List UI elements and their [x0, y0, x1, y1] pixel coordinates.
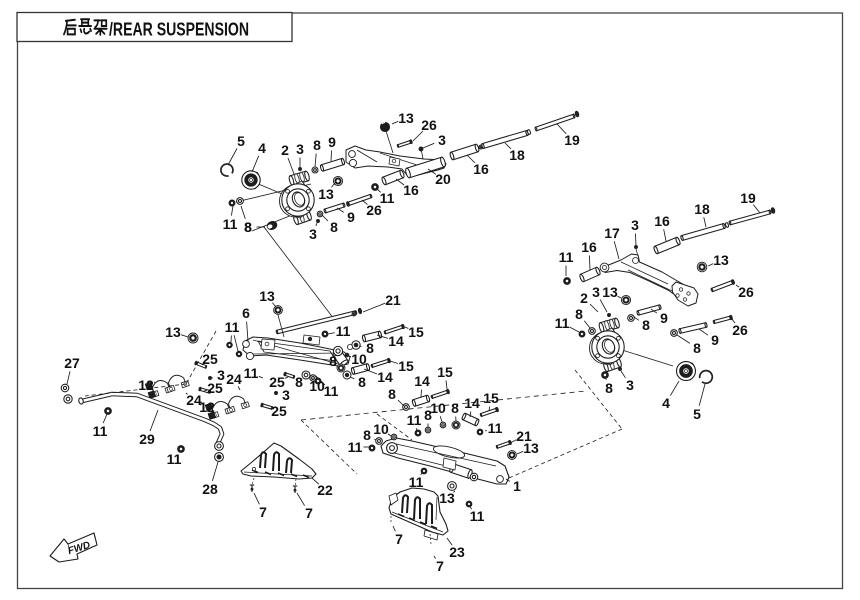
svg-text:16: 16 — [473, 161, 489, 177]
svg-text:13: 13 — [259, 288, 275, 304]
svg-text:8: 8 — [575, 306, 583, 322]
svg-text:/REAR SUSPENSION: /REAR SUSPENSION — [109, 19, 249, 39]
svg-text:21: 21 — [385, 292, 401, 308]
svg-text:16: 16 — [581, 239, 597, 255]
svg-text:13: 13 — [318, 186, 334, 202]
svg-text:8: 8 — [358, 374, 366, 390]
svg-text:5: 5 — [693, 406, 701, 422]
svg-text:18: 18 — [509, 147, 525, 163]
svg-text:11: 11 — [223, 216, 238, 232]
svg-text:8: 8 — [605, 380, 613, 396]
svg-text:3: 3 — [296, 141, 304, 157]
svg-text:8: 8 — [313, 137, 321, 153]
svg-text:10: 10 — [351, 351, 367, 367]
svg-text:2: 2 — [281, 142, 289, 158]
svg-text:8: 8 — [329, 353, 337, 369]
svg-text:26: 26 — [738, 284, 754, 300]
svg-text:17: 17 — [604, 225, 620, 241]
svg-text:11: 11 — [244, 365, 259, 381]
svg-text:13: 13 — [602, 284, 618, 300]
svg-text:29: 29 — [139, 431, 155, 447]
svg-text:8: 8 — [295, 374, 303, 390]
svg-text:16: 16 — [403, 182, 419, 198]
svg-text:11: 11 — [348, 439, 363, 455]
svg-text:3: 3 — [626, 377, 634, 393]
svg-text:8: 8 — [244, 219, 252, 235]
svg-text:13: 13 — [398, 110, 414, 126]
svg-text:24: 24 — [226, 371, 242, 387]
svg-text:8: 8 — [363, 427, 371, 443]
svg-text:3: 3 — [309, 226, 317, 242]
svg-text:11: 11 — [380, 190, 395, 206]
svg-text:13: 13 — [713, 252, 729, 268]
svg-text:6: 6 — [242, 305, 250, 321]
svg-text:11: 11 — [555, 315, 570, 331]
svg-text:3: 3 — [438, 132, 446, 148]
svg-text:24: 24 — [186, 392, 202, 408]
svg-text:11: 11 — [407, 412, 422, 428]
svg-text:22: 22 — [317, 482, 333, 498]
svg-text:19: 19 — [740, 190, 756, 206]
svg-text:13: 13 — [439, 490, 455, 506]
svg-text:25: 25 — [202, 351, 218, 367]
svg-text:11: 11 — [409, 474, 424, 490]
svg-text:11: 11 — [93, 423, 108, 439]
svg-text:9: 9 — [328, 134, 336, 150]
svg-text:10: 10 — [309, 378, 325, 394]
svg-text:12: 12 — [138, 377, 154, 393]
svg-text:23: 23 — [449, 544, 465, 560]
svg-text:11: 11 — [225, 319, 240, 335]
svg-text:10: 10 — [430, 400, 446, 416]
svg-text:7: 7 — [395, 531, 403, 547]
svg-text:9: 9 — [347, 209, 355, 225]
svg-text:1: 1 — [513, 478, 521, 494]
svg-text:20: 20 — [435, 171, 451, 187]
svg-text:9: 9 — [711, 332, 719, 348]
svg-text:7: 7 — [259, 504, 267, 520]
svg-text:15: 15 — [483, 390, 499, 406]
svg-text:10: 10 — [373, 421, 389, 437]
svg-text:11: 11 — [488, 420, 503, 436]
svg-text:2: 2 — [580, 290, 588, 306]
svg-text:28: 28 — [202, 481, 218, 497]
svg-text:4: 4 — [258, 140, 266, 156]
svg-text:26: 26 — [366, 202, 382, 218]
svg-text:8: 8 — [451, 400, 459, 416]
svg-text:4: 4 — [662, 395, 670, 411]
svg-text:14: 14 — [377, 369, 393, 385]
svg-text:16: 16 — [654, 213, 670, 229]
svg-text:15: 15 — [398, 358, 414, 374]
svg-text:11: 11 — [167, 451, 182, 467]
svg-text:3: 3 — [592, 284, 600, 300]
svg-text:18: 18 — [694, 201, 710, 217]
svg-text:13: 13 — [165, 324, 181, 340]
svg-text:11: 11 — [470, 508, 485, 524]
svg-text:8: 8 — [642, 317, 650, 333]
svg-text:15: 15 — [408, 324, 424, 340]
svg-text:8: 8 — [388, 386, 396, 402]
svg-text:9: 9 — [660, 310, 668, 326]
svg-text:26: 26 — [732, 322, 748, 338]
svg-text:7: 7 — [436, 558, 444, 574]
svg-text:8: 8 — [693, 340, 701, 356]
svg-text:8: 8 — [424, 407, 432, 423]
svg-text:3: 3 — [282, 387, 290, 403]
svg-text:14: 14 — [464, 395, 480, 411]
svg-text:11: 11 — [324, 383, 339, 399]
svg-text:3: 3 — [631, 217, 639, 233]
svg-text:5: 5 — [237, 133, 245, 149]
svg-text:15: 15 — [437, 364, 453, 380]
svg-text:7: 7 — [305, 505, 313, 521]
svg-text:26: 26 — [421, 117, 437, 133]
svg-text:13: 13 — [523, 440, 539, 456]
svg-text:11: 11 — [559, 249, 574, 265]
svg-text:8: 8 — [366, 340, 374, 356]
svg-text:27: 27 — [64, 355, 80, 371]
svg-text:8: 8 — [330, 219, 338, 235]
svg-text:11: 11 — [336, 323, 351, 339]
svg-text:14: 14 — [414, 373, 430, 389]
svg-text:25: 25 — [271, 403, 287, 419]
svg-text:14: 14 — [388, 333, 404, 349]
svg-text:25: 25 — [207, 380, 223, 396]
svg-text:19: 19 — [564, 132, 580, 148]
